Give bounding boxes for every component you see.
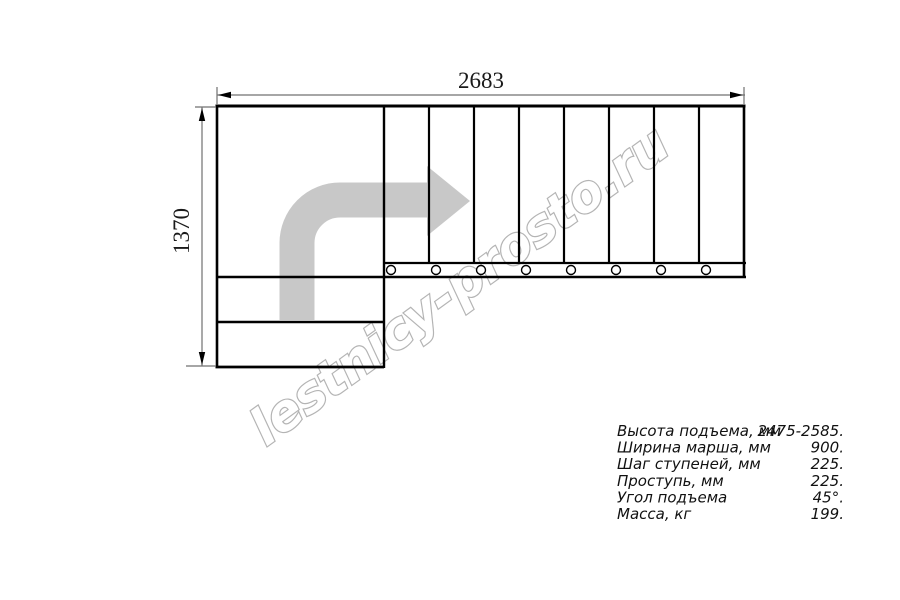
spec-label: Масса, кг [617, 505, 691, 523]
spec-label: Угол подъема [617, 488, 727, 506]
direction-arrowhead [427, 166, 470, 236]
tread-circle [702, 266, 711, 275]
dim-arrow-left [218, 92, 231, 98]
tread-circle [567, 266, 576, 275]
stair-plan-svg: lestnicy-prosto.ru [0, 0, 900, 600]
spec-value: 199. [811, 505, 844, 523]
spec-label: Ширина марша, мм [617, 439, 771, 457]
tread-circle [522, 266, 531, 275]
tread-circle [477, 266, 486, 275]
spec-label: Шаг ступеней, мм [617, 455, 761, 473]
drawing-page: lestnicy-prosto.ru [0, 0, 900, 600]
spec-label: Проступь, мм [617, 472, 724, 490]
tread-circle [432, 266, 441, 275]
dim-arrow-bottom [199, 352, 205, 365]
tread-circle [387, 266, 396, 275]
tread-fastener-circles [387, 266, 711, 275]
dim-arrow-right [730, 92, 743, 98]
dim-arrow-top [199, 108, 205, 121]
top-dimension: 2683 [217, 68, 745, 104]
spec-value: 900. [811, 439, 844, 457]
specs-list: Высота подъема, мм 2475-2585. Ширина мар… [617, 422, 844, 523]
left-dimension: 1370 [169, 107, 216, 366]
spec-value: 45°. [813, 488, 844, 506]
tread-circle [612, 266, 621, 275]
tread-circle [657, 266, 666, 275]
dimension-label-height: 1370 [169, 208, 194, 254]
dimension-label-width: 2683 [458, 68, 504, 93]
spec-value: 2475-2585. [757, 422, 844, 440]
spec-value: 225. [811, 472, 844, 490]
spec-value: 225. [811, 455, 844, 473]
